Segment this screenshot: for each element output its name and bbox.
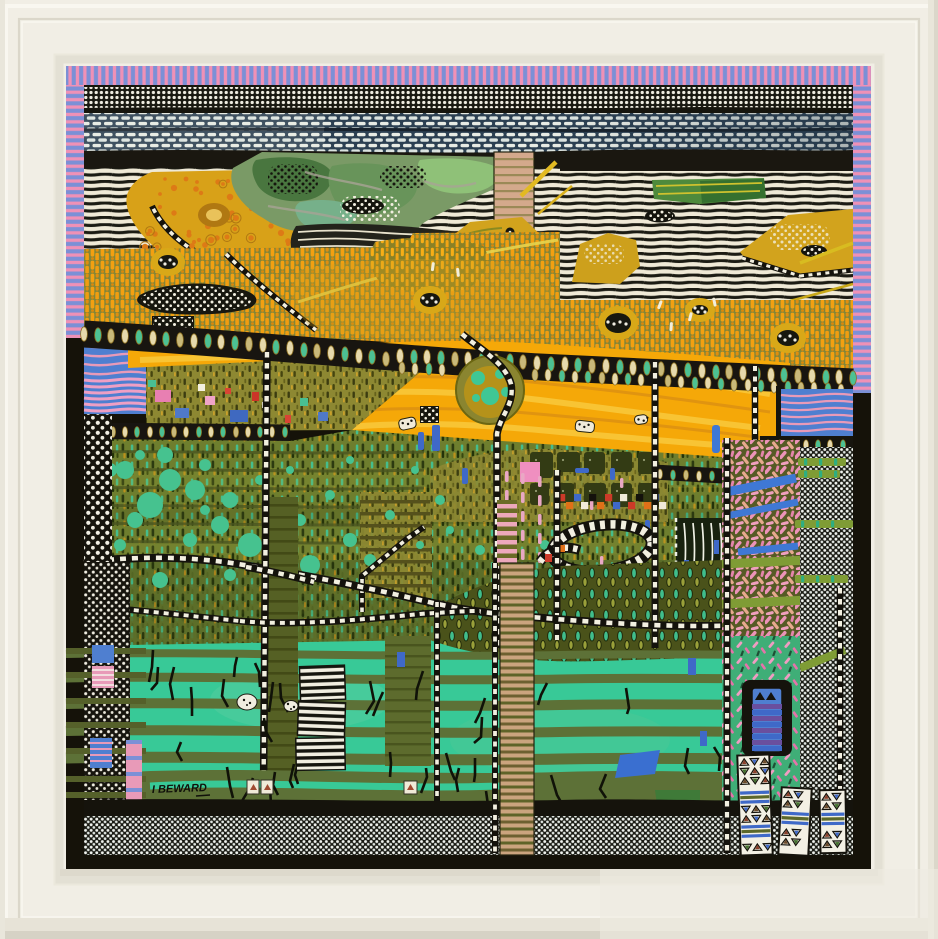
- svg-text:I BEWARD: I BEWARD: [152, 782, 207, 796]
